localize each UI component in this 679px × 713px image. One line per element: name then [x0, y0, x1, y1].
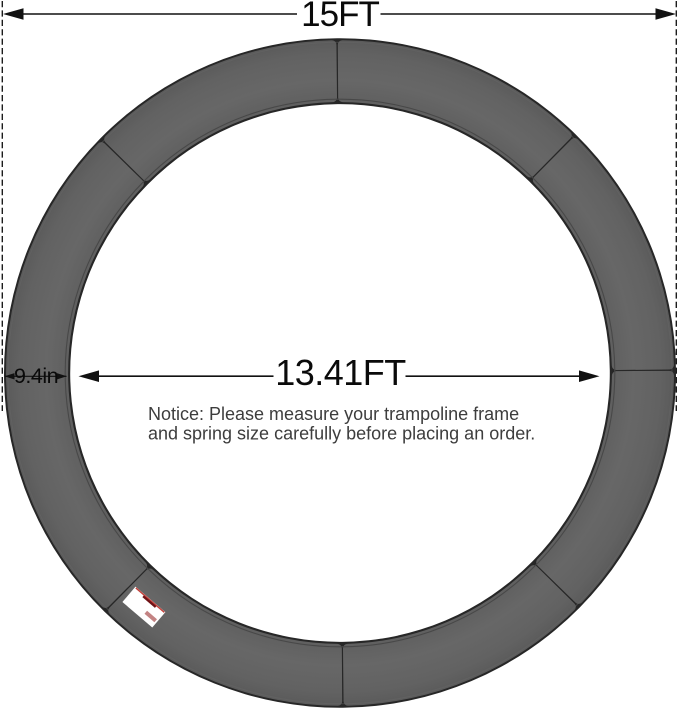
svg-text:15FT: 15FT	[301, 0, 379, 34]
svg-text:13.41FT: 13.41FT	[275, 352, 406, 393]
svg-text:9.4in: 9.4in	[14, 364, 58, 388]
svg-text:Notice: Please measure your tr: Notice: Please measure your trampoline f…	[148, 404, 519, 424]
svg-text:and spring size carefully befo: and spring size carefully before placing…	[148, 424, 535, 444]
